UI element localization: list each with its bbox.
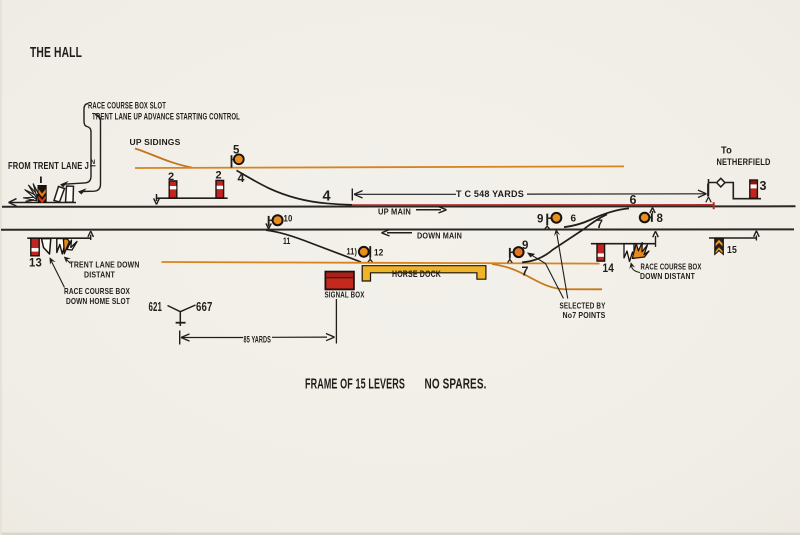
svg-text:8: 8 — [657, 213, 664, 225]
svg-text:HORSE DOCK: HORSE DOCK — [392, 269, 441, 280]
svg-text:TRENT LANE UP ADVANCE STARTING: TRENT LANE UP ADVANCE STARTING CONTROL — [92, 112, 240, 122]
svg-text:4: 4 — [238, 171, 245, 185]
svg-text:N: N — [91, 159, 96, 166]
svg-text:11: 11 — [283, 236, 291, 247]
svg-text:RACE COURSE BOX: RACE COURSE BOX — [64, 287, 130, 296]
svg-text:11): 11) — [347, 247, 358, 258]
svg-text:DOWN HOME SLOT: DOWN HOME SLOT — [66, 297, 130, 306]
svg-text:14: 14 — [603, 261, 615, 275]
svg-text:FROM TRENT LANE J: FROM TRENT LANE J — [8, 160, 89, 172]
svg-text:3: 3 — [760, 179, 767, 193]
svg-text:RACE COURSE BOX: RACE COURSE BOX — [641, 263, 702, 272]
svg-text:TRENT LANE DOWN: TRENT LANE DOWN — [70, 261, 140, 270]
svg-text:NO SPARES.: NO SPARES. — [425, 376, 487, 393]
svg-text:FRAME OF 15 LEVERS: FRAME OF 15 LEVERS — [305, 376, 405, 393]
svg-text:4: 4 — [323, 189, 331, 205]
svg-text:DOWN MAIN: DOWN MAIN — [417, 231, 462, 241]
svg-text:THE HALL: THE HALL — [30, 44, 82, 61]
svg-text:SELECTED BY: SELECTED BY — [560, 301, 606, 311]
svg-text:6: 6 — [630, 193, 637, 207]
svg-text:T C 548 YARDS: T C 548 YARDS — [456, 189, 524, 199]
svg-text:RACE COURSE BOX SLOT: RACE COURSE BOX SLOT — [88, 101, 166, 111]
svg-text:621: 621 — [149, 300, 163, 314]
svg-text:DISTANT: DISTANT — [84, 270, 115, 279]
svg-text:UP SIDINGS: UP SIDINGS — [130, 137, 181, 147]
svg-text:9: 9 — [537, 214, 544, 226]
svg-text:13: 13 — [29, 256, 42, 270]
svg-text:To: To — [721, 146, 732, 157]
svg-text:DOWN DISTANT: DOWN DISTANT — [640, 272, 695, 281]
svg-text:10: 10 — [284, 214, 293, 225]
svg-text:6: 6 — [571, 214, 577, 225]
svg-text:7: 7 — [522, 265, 529, 279]
svg-text:No7 POINTS: No7 POINTS — [563, 310, 606, 320]
svg-text:SIGNAL BOX: SIGNAL BOX — [325, 290, 365, 299]
svg-text:NETHERFIELD: NETHERFIELD — [717, 157, 771, 167]
svg-text:UP MAIN: UP MAIN — [378, 207, 411, 217]
svg-text:12: 12 — [374, 248, 384, 259]
svg-text:7: 7 — [597, 219, 604, 231]
svg-text:85 YARDS: 85 YARDS — [244, 335, 272, 345]
svg-text:15: 15 — [727, 244, 737, 256]
svg-text:667: 667 — [196, 300, 213, 314]
